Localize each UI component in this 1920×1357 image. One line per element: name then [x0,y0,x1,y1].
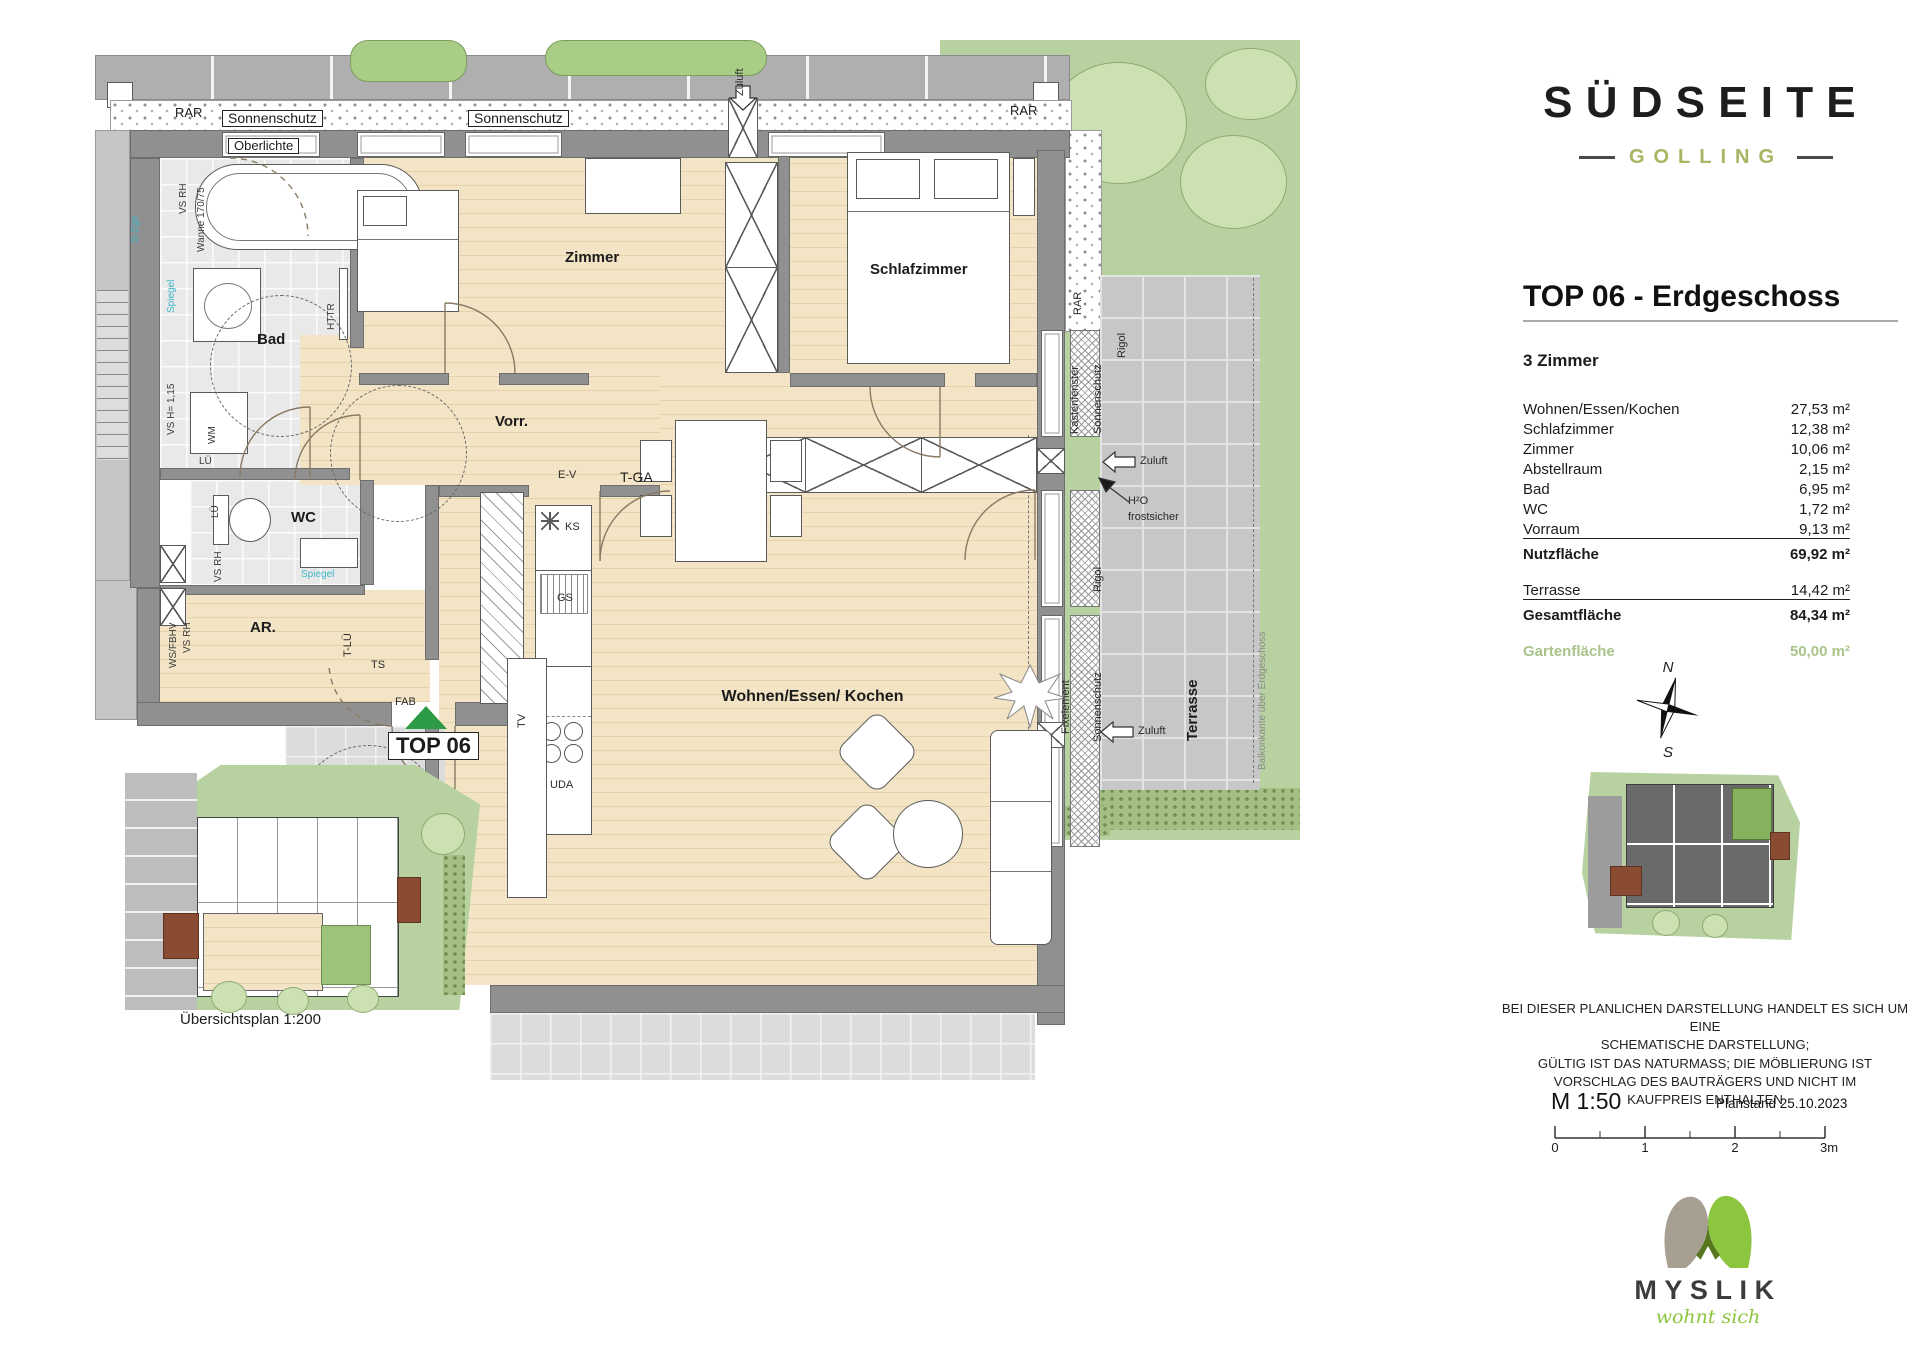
wall [499,373,589,385]
label-wm: WM [208,402,219,444]
table-row-total-gross: Gesamtfläche84,34 m² [1523,600,1850,624]
sofa [990,730,1052,945]
coffee-table [893,800,963,868]
label-gs: GS [557,593,573,605]
logo-dash-right [1797,156,1833,159]
label-lue: LÜ [199,457,212,468]
floor-plan-sheet: TOP 06 RAR RAR RAR Sonnenschutz Sonnensc… [0,0,1920,1357]
label-lue: LÜ [211,488,222,518]
label-t-lue: T-LÜ [343,605,355,657]
overview-hedge [443,855,465,995]
tv-sideboard [507,658,547,898]
page-title: TOP 06 - Erdgeschoss [1523,280,1898,314]
window-kastenfenster [1041,330,1063,437]
label-rar: RAR [175,106,202,120]
siteplan-road [1588,796,1622,928]
siteplan-tree [1702,914,1728,938]
label-terrasse: Terrasse [1185,636,1201,741]
scale-tick: 2 [1731,1140,1738,1155]
compass-south: S [1628,745,1708,761]
compass-north: N [1628,660,1708,676]
label-sonnenschutz: Sonnenschutz [222,110,323,127]
wall [359,373,449,385]
label-wohnen: Wohnen/Essen/ Kochen [700,688,925,705]
company-tagline: wohnt sich [1588,1306,1828,1328]
project-location-row: GOLLING [1500,146,1912,169]
label-sonnenschutz: Sonnenschutz [1093,622,1105,742]
entrance-arrow-icon [405,706,447,729]
site-overview-plan [125,765,480,1010]
table-row: Wohnen/Essen/Kochen27,53 m² [1523,398,1850,418]
overview-balcony [397,877,421,923]
label-rigol: Rigol [1117,298,1129,358]
neighbour-structure [95,580,137,720]
scale-label: M 1:50 [1551,1088,1621,1115]
label-sonnenschutz: Sonnenschutz [1093,332,1105,434]
label-uda: UDA [550,780,573,792]
plan-date: Planstand 25.10.2023 [1716,1096,1847,1111]
overview-caption: Übersichtsplan 1:200 [180,1012,321,1028]
tree-canopy [1205,48,1297,120]
wall [137,588,160,718]
double-bed [847,152,1010,364]
wc-washbasin [300,538,358,568]
wardrobe [725,162,778,373]
room-abstellraum-floor [160,590,430,702]
rooms-count: 3 Zimmer [1523,352,1599,370]
label-rigol: Rigol [1093,502,1105,592]
chair [770,440,802,482]
title-rule [1523,320,1898,322]
wall [975,373,1037,387]
label-sonnenschutz: Sonnenschutz [468,110,569,127]
scale-tick: 3m [1820,1140,1838,1155]
label-tv: TV [517,698,529,728]
label-ev: E-V [558,470,576,482]
logo-dash-left [1579,156,1615,159]
table-row: Zimmer10,06 m² [1523,438,1850,458]
shrub [350,40,467,82]
label-ks: KS [565,522,580,534]
window [1041,490,1063,607]
label-h2o: H²O [1128,496,1148,508]
label-rar: RAR [1073,265,1085,315]
label-ts: TS [371,660,385,672]
hedge-strip [1100,788,1300,830]
siteplan-balcony [1770,832,1790,860]
site-location-plan [1582,772,1800,940]
single-bed [357,190,459,312]
label-wanne: Wanne 170/75 [197,166,208,252]
table-row: WC1,72 m² [1523,498,1850,518]
label-ws-fbhv: WS/FBHV [169,583,180,668]
overview-tree [421,813,465,855]
overview-road [125,773,197,1010]
scale-bar: 0 1 2 3m [1551,1122,1841,1162]
project-location: GOLLING [1629,146,1783,169]
toilet-bowl [229,498,271,542]
label-balkonkante: Balkonkante über Erdgeschoss [1258,580,1269,770]
label-fixelement: Fixelement [1061,622,1073,734]
table-row-terrasse: Terrasse14,42 m² [1523,579,1850,600]
overview-terrace [321,925,371,985]
label-zuluft: Zuluft [1138,726,1166,738]
compass-needle-icon [1628,676,1708,740]
company-logo: MYSLIK wohnt sich [1588,1192,1828,1328]
scale-tick: 1 [1641,1140,1648,1155]
label-zuluft: Zuluft [1140,456,1168,468]
unit-marker: TOP 06 [388,732,479,760]
fridge-star-icon [541,512,559,530]
label-s-zge: S-Zge [131,195,142,243]
table-row: Schlafzimmer12,38 m² [1523,418,1850,438]
label-vs-rh: VS RH [214,532,225,582]
window [357,132,445,157]
label-kastenfenster: Kastenfenster [1070,332,1082,434]
balcony-edge-line [1253,278,1255,783]
label-bad: Bad [257,332,285,348]
table-row: Vorraum9,13 m² [1523,518,1850,539]
dining-table [675,420,767,562]
label-httr: HTTR [327,272,338,330]
table-row: Abstellraum2,15 m² [1523,458,1850,478]
label-zimmer: Zimmer [565,250,619,266]
siteplan-balcony [1610,866,1642,896]
neighbour-stair [97,290,128,460]
supply-air-shaft [1037,448,1065,474]
wall [490,985,1065,1013]
chair [770,495,802,537]
label-schlafzimmer: Schlafzimmer [870,262,968,278]
desk [585,158,681,214]
label-rar: RAR [1010,104,1037,118]
label-spiegel: Spiegel [167,253,178,313]
company-name: MYSLIK [1588,1275,1828,1306]
scale-tick: 0 [1551,1140,1558,1155]
label-fab: FAB [395,697,416,709]
supply-air-shaft [728,98,758,158]
label-abstellraum: AR. [250,620,276,636]
siteplan-tree [1652,910,1680,936]
table-row: Bad6,95 m² [1523,478,1850,498]
tree-canopy [1180,135,1287,229]
turning-circle [330,385,467,522]
wall [790,373,945,387]
chair [640,495,672,537]
overview-tree [211,981,247,1013]
label-vorraum: Vorr. [495,414,528,430]
label-vs-rh: VS RH [179,162,190,214]
label-frostsicher: frostsicher [1128,512,1179,524]
table-row-garden: Gartenfläche50,00 m² [1523,640,1850,660]
wall [137,702,392,726]
label-wc: WC [291,510,316,526]
table-row-total-net: Nutzfläche69,92 m² [1523,539,1850,563]
overview-balcony [163,913,199,959]
overview-tree [347,985,379,1013]
siteplan-green-court [1732,788,1772,840]
scale-bar-icon [1551,1122,1841,1142]
area-table: Wohnen/Essen/Kochen27,53 m² Schlafzimmer… [1523,398,1850,660]
window [465,132,562,157]
label-oberlichte: Oberlichte [228,138,299,154]
lower-terrace-path [490,1013,1035,1080]
label-spiegel: Spiegel [301,570,334,581]
label-vs-h: VS H= 1,15 [167,345,178,435]
duct-shaft [160,545,186,583]
label-vs-rh: VS RH [183,593,194,653]
nightstand [1013,158,1035,216]
compass: N S [1628,660,1708,761]
myslik-logo-icon [1646,1192,1770,1270]
wall [160,468,350,480]
project-logo: SÜDSEITE [1500,78,1912,128]
label-t-ga: T-GA [620,470,653,485]
wall [778,150,790,373]
label-zuluft: Zuluft [735,46,747,96]
overview-highlighted-unit [203,913,323,991]
